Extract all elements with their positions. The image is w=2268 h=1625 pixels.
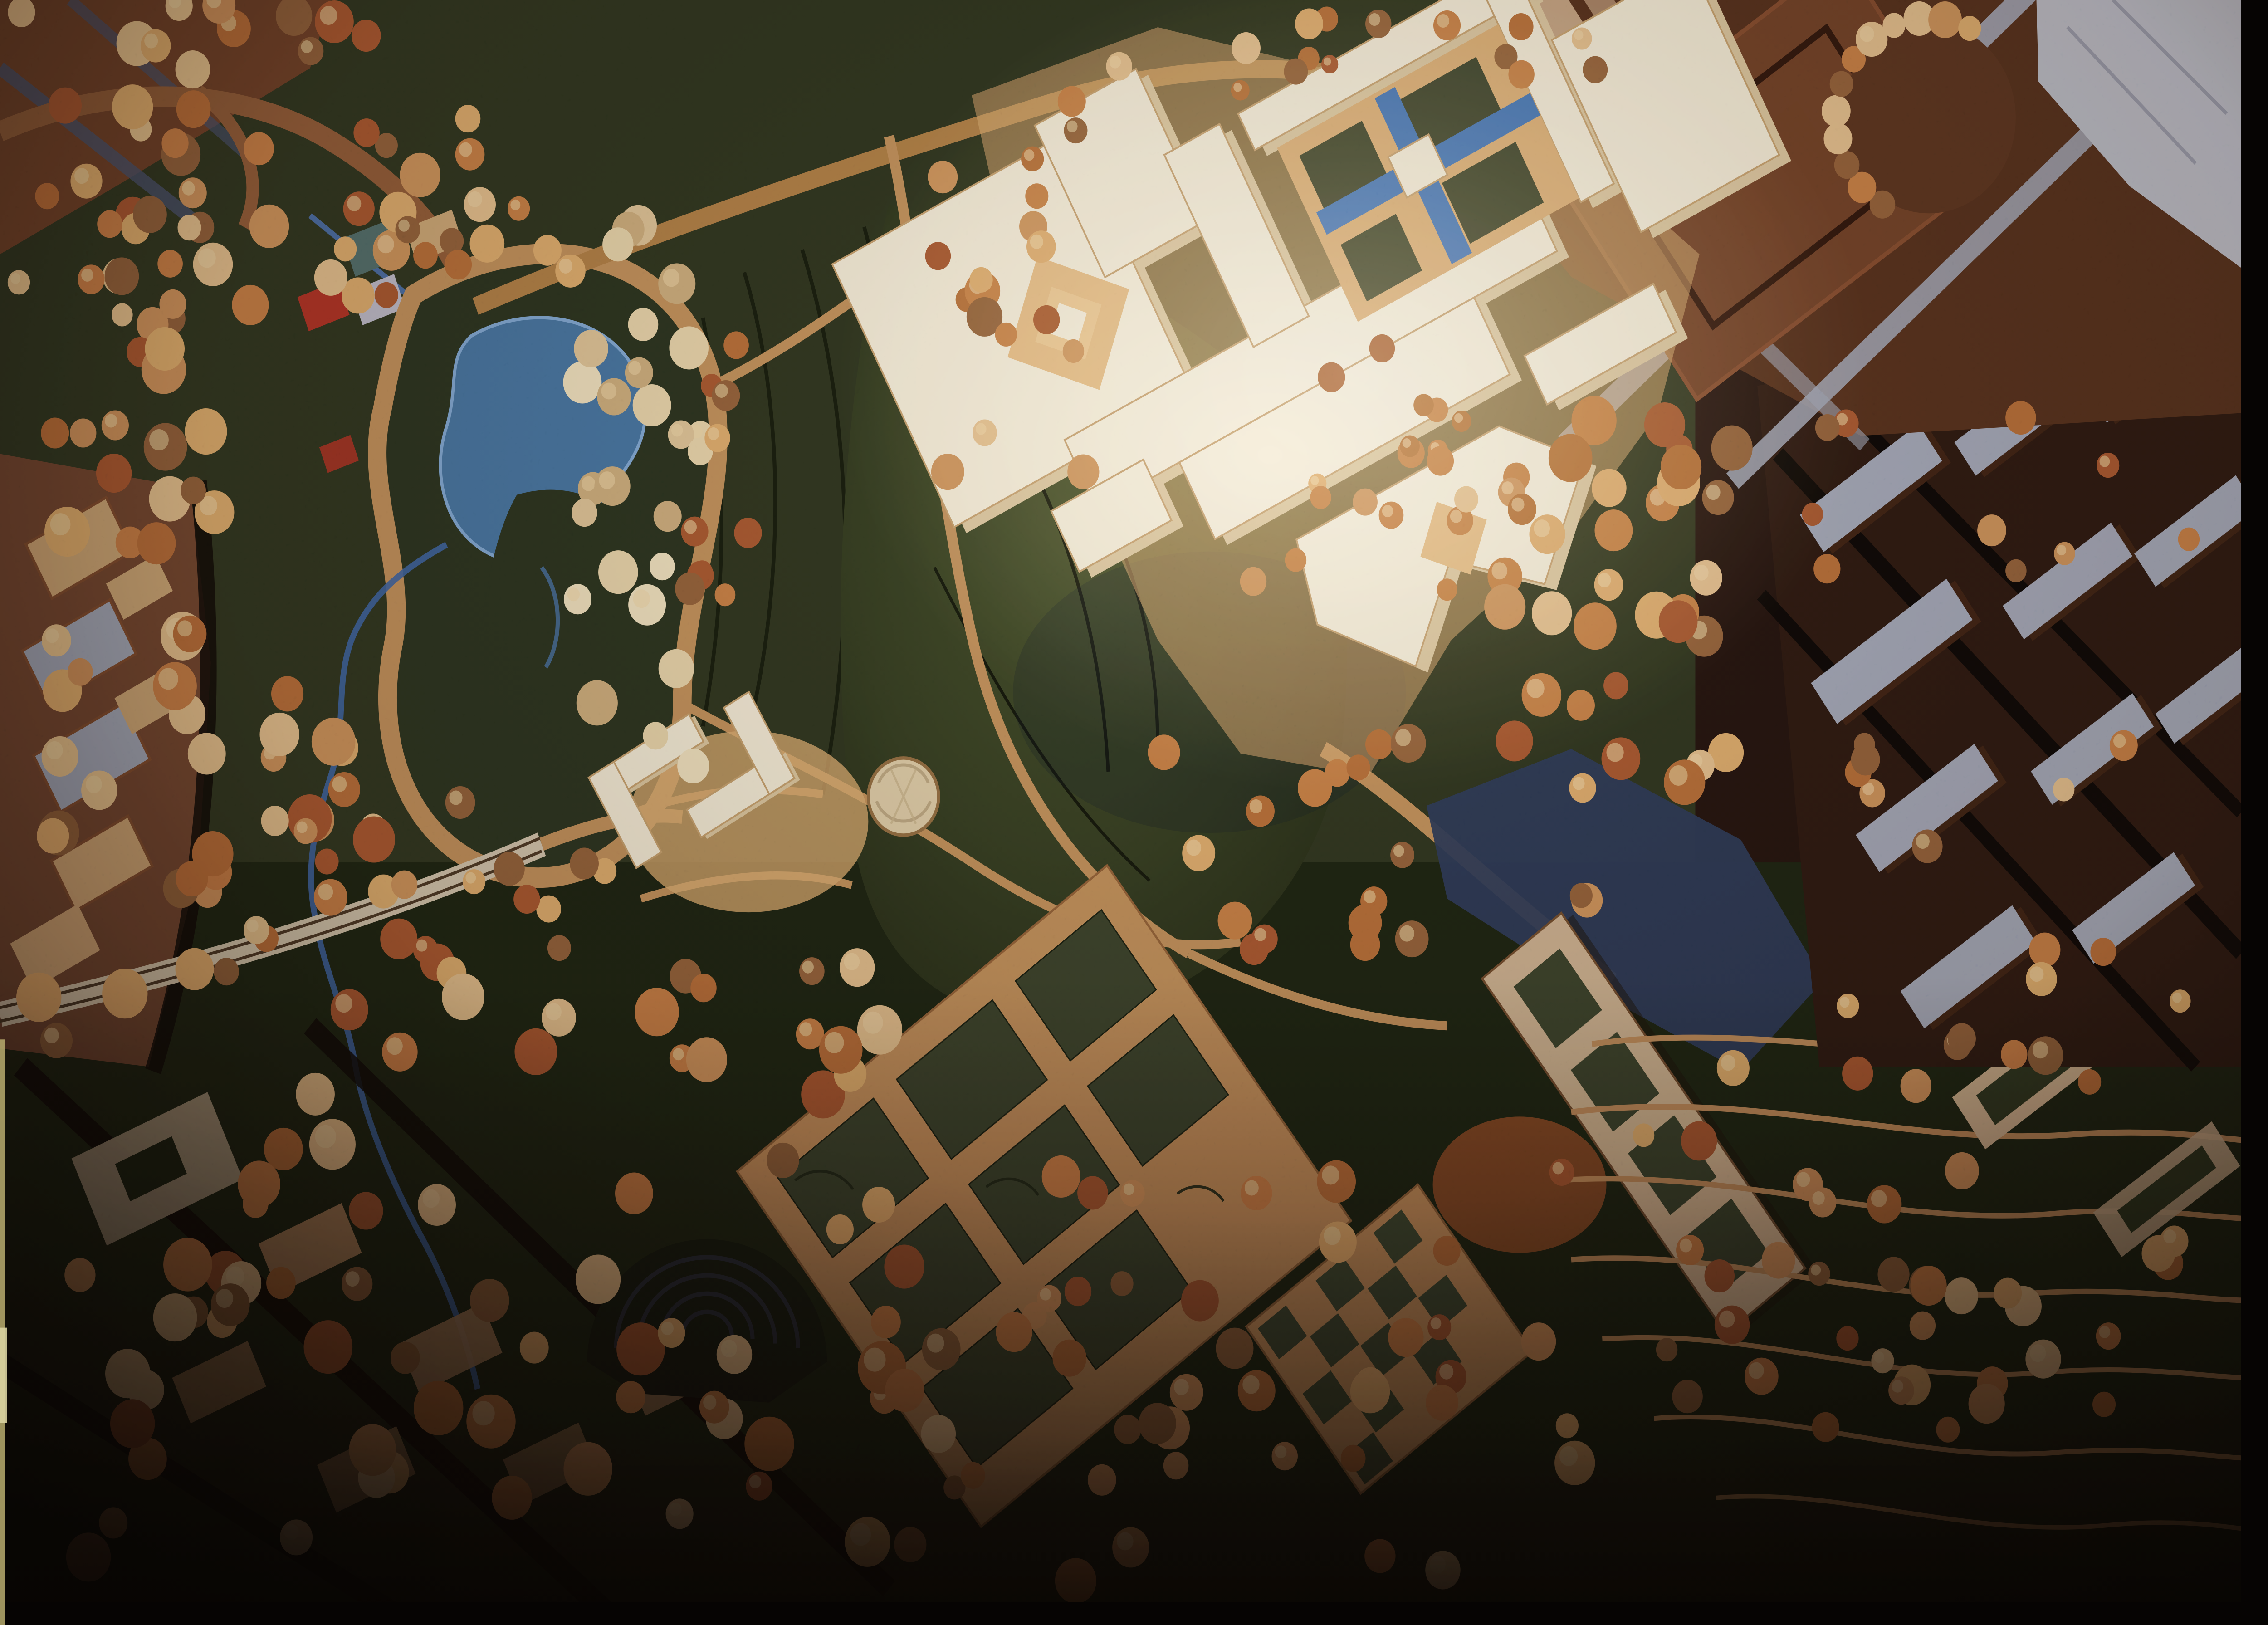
film-edge-right <box>2241 0 2268 1625</box>
photo-canvas <box>0 0 2268 1625</box>
architectural-model-photo <box>0 0 2268 1625</box>
film-edge-bottom <box>0 1602 2268 1625</box>
photo-overlays <box>0 0 2268 1625</box>
